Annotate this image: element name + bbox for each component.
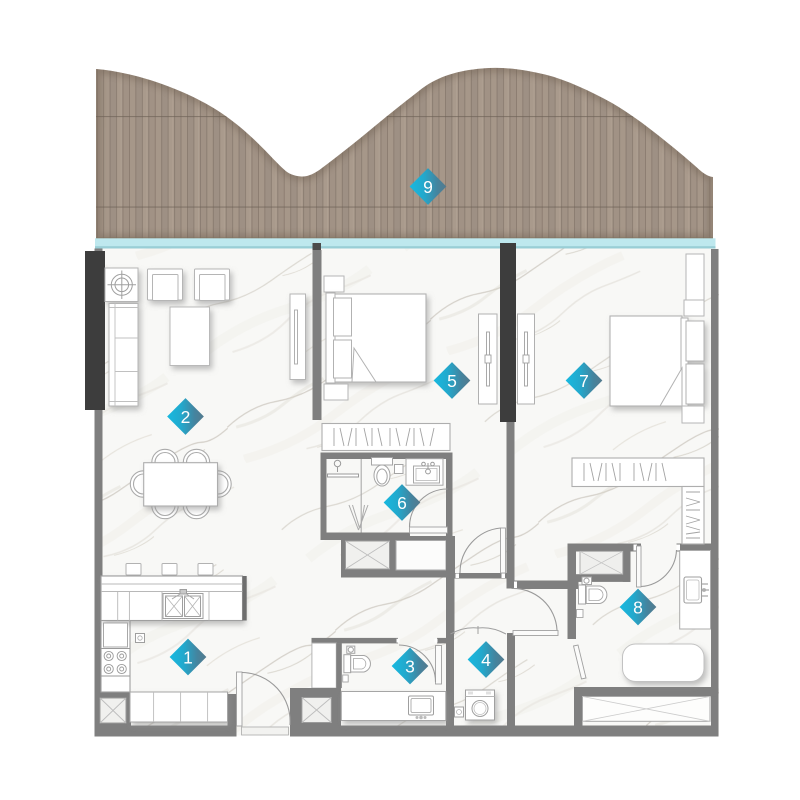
svg-text:1: 1 xyxy=(183,648,193,668)
svg-text:3: 3 xyxy=(405,657,415,677)
svg-text:9: 9 xyxy=(423,177,433,197)
svg-text:5: 5 xyxy=(447,371,457,391)
svg-text:8: 8 xyxy=(633,598,643,618)
svg-text:6: 6 xyxy=(397,493,407,513)
svg-text:7: 7 xyxy=(579,371,589,391)
svg-text:4: 4 xyxy=(481,650,491,670)
svg-text:2: 2 xyxy=(181,407,191,427)
